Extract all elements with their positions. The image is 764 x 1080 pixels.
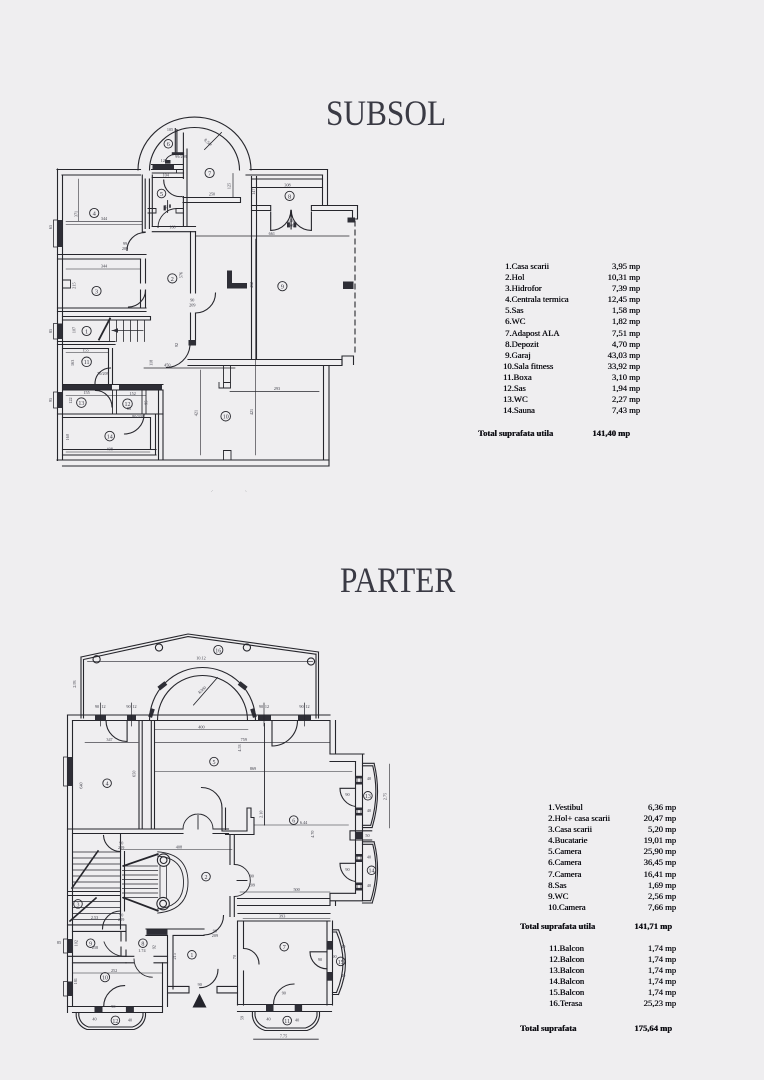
svg-text:85: 85	[48, 329, 53, 333]
svg-text:104: 104	[163, 173, 170, 178]
svg-text:6.44: 6.44	[300, 820, 308, 825]
svg-text:95: 95	[143, 401, 148, 405]
svg-text:40: 40	[341, 944, 345, 949]
svg-text:308: 308	[284, 182, 290, 187]
svg-text:215: 215	[72, 282, 77, 288]
svg-text:90: 90	[198, 982, 202, 987]
svg-text:2: 2	[205, 875, 208, 881]
svg-text:10: 10	[102, 976, 108, 982]
svg-text:R300: R300	[197, 685, 207, 695]
svg-text:100: 100	[169, 225, 175, 230]
svg-text:105: 105	[167, 127, 173, 132]
svg-text:293: 293	[274, 386, 280, 391]
svg-text:107: 107	[72, 327, 77, 333]
svg-text:209: 209	[118, 845, 124, 850]
svg-text:90: 90	[332, 954, 336, 959]
svg-text:40: 40	[295, 1018, 299, 1023]
svg-text:2: 2	[171, 276, 174, 283]
svg-text:90: 90	[259, 704, 263, 709]
svg-text:163: 163	[70, 360, 75, 366]
svg-text:12: 12	[101, 704, 105, 709]
svg-text:12: 12	[112, 1019, 118, 1025]
svg-text:500: 500	[293, 887, 299, 892]
svg-text:7: 7	[283, 945, 286, 951]
svg-text:12: 12	[132, 704, 136, 709]
svg-text:215: 215	[172, 953, 177, 959]
svg-text:7: 7	[208, 170, 212, 177]
svg-text:6: 6	[167, 141, 171, 148]
svg-text:90: 90	[282, 991, 286, 996]
svg-text:14: 14	[369, 869, 375, 875]
svg-text:8.50²: 8.50²	[203, 137, 214, 148]
svg-text:2.93: 2.93	[72, 680, 77, 687]
svg-text:209: 209	[118, 917, 124, 922]
svg-text:90: 90	[111, 1004, 115, 1009]
svg-text:347: 347	[106, 737, 112, 742]
svg-text:408: 408	[107, 447, 113, 452]
svg-text:8: 8	[141, 942, 144, 948]
svg-text:11: 11	[84, 360, 90, 366]
svg-text:344: 344	[101, 216, 108, 221]
svg-text:125: 125	[227, 183, 232, 189]
svg-text:155: 155	[83, 390, 89, 395]
svg-text:40: 40	[128, 1018, 132, 1023]
svg-text:5: 5	[160, 191, 163, 198]
svg-text:400: 400	[198, 724, 204, 729]
svg-text:869: 869	[250, 766, 256, 771]
svg-text:8: 8	[288, 193, 291, 200]
svg-text:12: 12	[265, 704, 269, 709]
svg-text:122: 122	[68, 397, 73, 403]
svg-text:90: 90	[126, 704, 130, 709]
svg-text:102: 102	[74, 940, 79, 946]
svg-text:59: 59	[240, 1016, 245, 1020]
svg-text:2.53: 2.53	[91, 915, 98, 920]
svg-text:344: 344	[101, 264, 108, 269]
svg-text:10: 10	[223, 415, 229, 421]
svg-text:90: 90	[250, 874, 254, 879]
svg-text:155: 155	[82, 347, 88, 352]
svg-text:152: 152	[130, 391, 136, 396]
svg-text:40: 40	[367, 855, 371, 860]
svg-text:80/209: 80/209	[132, 414, 144, 419]
svg-text:5: 5	[213, 760, 216, 766]
svg-text:11: 11	[284, 1019, 290, 1025]
svg-text:85: 85	[57, 940, 61, 945]
svg-text:92: 92	[174, 343, 179, 347]
svg-text:209: 209	[122, 246, 128, 251]
svg-text:40: 40	[367, 808, 371, 813]
svg-text:9: 9	[281, 284, 284, 291]
svg-text:3: 3	[95, 288, 98, 295]
svg-text:160: 160	[65, 434, 70, 440]
svg-text:13: 13	[365, 794, 371, 800]
svg-text:50: 50	[365, 833, 369, 838]
svg-text:12: 12	[305, 704, 309, 709]
svg-text:40: 40	[266, 1016, 270, 1021]
svg-text:90: 90	[345, 792, 349, 797]
svg-text:99/209: 99/209	[175, 154, 187, 159]
svg-text:14: 14	[107, 435, 113, 441]
svg-text:258: 258	[92, 945, 98, 950]
svg-text:40: 40	[367, 883, 371, 888]
svg-text:209: 209	[189, 303, 195, 308]
svg-text:421: 421	[249, 409, 254, 415]
svg-text:118: 118	[149, 360, 154, 366]
svg-text:250: 250	[209, 192, 215, 197]
svg-text:181: 181	[73, 978, 78, 984]
svg-text:650: 650	[131, 771, 136, 777]
svg-text:759: 759	[241, 737, 247, 742]
svg-text:209: 209	[249, 883, 255, 888]
svg-text:88: 88	[127, 406, 131, 411]
svg-text:120: 120	[161, 158, 167, 163]
svg-text:4: 4	[93, 210, 97, 217]
svg-text:576: 576	[178, 272, 183, 278]
svg-text:640: 640	[79, 782, 84, 788]
svg-text:2.10: 2.10	[258, 811, 263, 818]
svg-text:2.75: 2.75	[382, 793, 387, 800]
svg-text:4.70: 4.70	[310, 831, 315, 838]
svg-text:4: 4	[106, 782, 109, 788]
svg-text:40: 40	[341, 973, 345, 978]
svg-text:661: 661	[269, 231, 275, 236]
svg-text:.·: .·	[211, 488, 213, 493]
svg-text:70: 70	[232, 955, 237, 959]
svg-text:1.74: 1.74	[138, 948, 146, 953]
svg-text:`: `	[245, 490, 247, 495]
svg-text:65: 65	[48, 225, 53, 229]
svg-text:40: 40	[367, 776, 371, 781]
svg-text:1: 1	[85, 328, 88, 335]
svg-text:90: 90	[345, 867, 349, 872]
svg-text:371: 371	[74, 211, 79, 217]
svg-text:408: 408	[176, 844, 182, 849]
svg-text:393: 393	[279, 913, 285, 918]
svg-text:209: 209	[212, 933, 218, 938]
svg-text:90: 90	[299, 704, 303, 709]
svg-text:92: 92	[151, 945, 156, 949]
svg-text:10.12: 10.12	[196, 656, 205, 661]
svg-text:70/209: 70/209	[97, 371, 109, 376]
svg-text:1: 1	[190, 953, 193, 959]
svg-text:40: 40	[92, 1017, 96, 1022]
svg-text:209: 209	[288, 223, 294, 228]
svg-text:421: 421	[194, 410, 199, 416]
svg-text:252: 252	[111, 968, 117, 973]
svg-text:452: 452	[249, 282, 254, 288]
svg-text:4.53: 4.53	[237, 744, 242, 751]
svg-text:90: 90	[318, 957, 322, 962]
svg-text:90: 90	[95, 704, 99, 709]
svg-text:16: 16	[215, 648, 221, 654]
svg-text:13: 13	[78, 401, 84, 407]
svg-text:15: 15	[338, 960, 344, 966]
svg-text:7.75: 7.75	[280, 1034, 287, 1039]
svg-text:3: 3	[77, 902, 80, 908]
svg-text:92: 92	[163, 205, 168, 209]
svg-text:450: 450	[164, 363, 170, 368]
svg-text:147: 147	[251, 189, 256, 195]
svg-text:6: 6	[292, 819, 295, 825]
svg-text:95: 95	[48, 398, 53, 402]
